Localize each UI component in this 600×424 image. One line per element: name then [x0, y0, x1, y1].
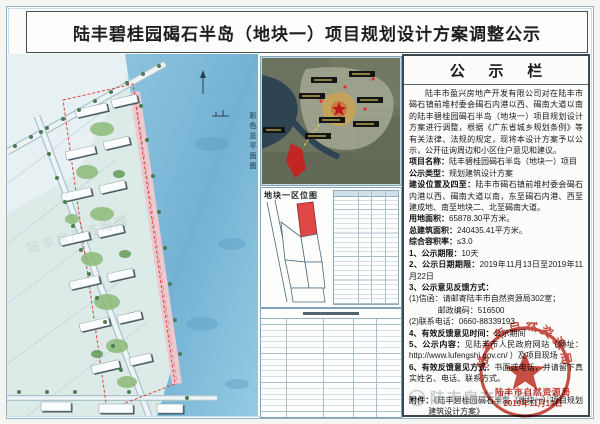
- notice-line: 邮政编码：516500: [409, 305, 583, 316]
- notice-poster-photo: 陆丰碧桂园碣石半岛（地块一）项目规划设计方案调整公示: [0, 0, 600, 424]
- notice-attachment: 附件：《陆丰碧桂园碣石半岛（地块一）项目规划建筑设计方案》: [409, 395, 583, 417]
- notice-line: 5、公示内容：见陆丰市人民政府网站（网址： http://www.lufengs…: [409, 339, 583, 362]
- notice-line: 建设位置及四至：陆丰市碣石镇前堆村委会碣石内港以西、碣南大道以南，东至碣石内港、…: [409, 179, 583, 213]
- notice-line: 公示类型：规划建筑设计方案: [409, 168, 583, 179]
- poster-title: 陆丰碧桂园碣石半岛（地块一）项目规划设计方案调整公示: [73, 20, 541, 45]
- site-plan-vertical-label: 彩色总平面图: [247, 112, 257, 172]
- public-notice-board: 公 示 栏 陆丰市盈兴房地产开发有限公司对在陆丰市碣石镇前堆村委会碣石内港以西、…: [402, 54, 590, 417]
- notice-line: 6、有效反馈意见方式：书面或电话，并请留下真实姓名、电话、联系方式。: [409, 362, 583, 385]
- satellite-map-drawing: [261, 57, 401, 185]
- notice-line: (2)联系电话：0660-88339193: [409, 316, 583, 327]
- notice-line: 3、公示意见反馈方式：: [409, 282, 583, 293]
- notice-title: 公 示 栏: [404, 58, 588, 85]
- notice-line: 项目名称：陆丰碧桂园碣石半岛（地块一）项目: [409, 156, 583, 167]
- site-plan-rendering: 陆丰房产咨询网 彩色总平面图: [7, 54, 258, 416]
- notice-line: 总建筑面积：240435.41平方米。: [409, 225, 583, 236]
- indicator-table-header: [334, 191, 398, 197]
- building-table-rows: [261, 319, 401, 418]
- plot-location-block: 地块一区位图: [260, 187, 402, 308]
- notice-body: 陆丰市盈兴房地产开发有限公司对在陆丰市碣石镇前堆村委会碣石内港以西、碣南大道以南…: [409, 88, 583, 417]
- notice-line: 4、有效反馈意见时间：公示期间: [409, 328, 583, 339]
- notice-line: (1)信函：请邮寄陆丰市自然资源局302室；: [409, 293, 583, 304]
- notice-line: 用地面积：65878.30平方米。: [409, 213, 583, 224]
- plot-sketch-drawing: [261, 200, 333, 304]
- notice-line: 2、公示日期期限：2019年11月13日至2019年11月22日: [409, 259, 583, 282]
- building-table-header: [261, 309, 401, 319]
- notice-intro: 陆丰市盈兴房地产开发有限公司对在陆丰市碣石镇前堆村委会碣石内港以西、碣南大道以南…: [409, 88, 583, 156]
- satellite-location-map: [260, 56, 402, 186]
- building-schedule-table: [260, 308, 402, 418]
- notice-line: 1、公示期限：10天: [409, 248, 583, 259]
- notice-line: 综合容积率：≤3.0: [409, 236, 583, 247]
- economic-indicator-table: [333, 190, 399, 305]
- poster-title-box: 陆丰碧桂园碣石半岛（地块一）项目规划设计方案调整公示: [26, 11, 588, 53]
